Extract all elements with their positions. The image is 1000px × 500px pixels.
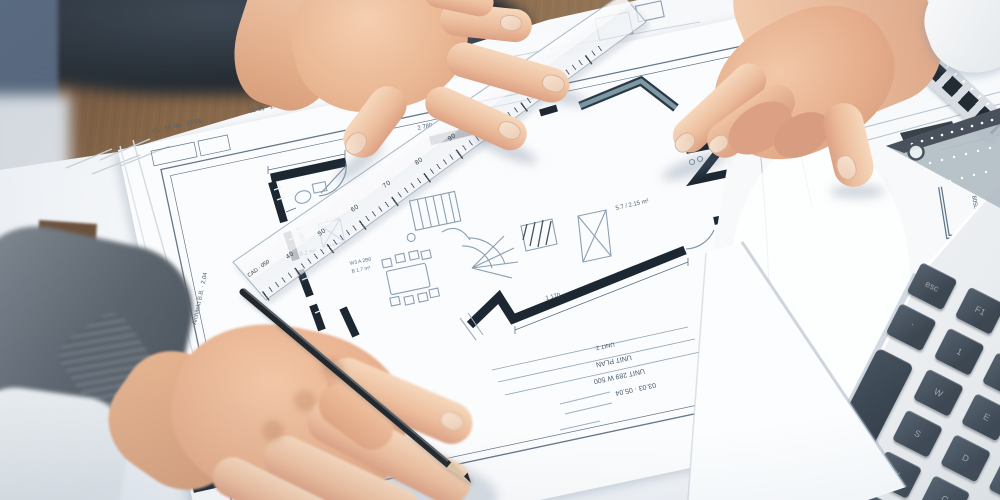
pencil-wood-tip: [447, 462, 470, 483]
pencil: [0, 0, 1000, 500]
photo-architects-discussing-blueprint: 4/5 · 5K 9B · 63 58 J2-05 · 1:50 © Autod…: [0, 0, 1000, 500]
